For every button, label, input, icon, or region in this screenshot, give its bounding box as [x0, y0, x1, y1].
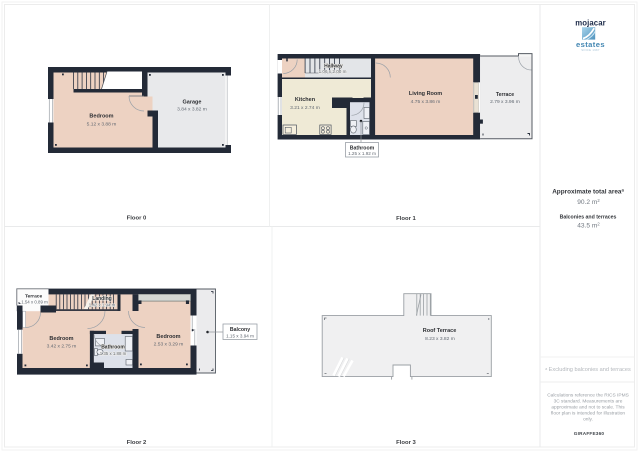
svg-text:1.54 x 0.89 m: 1.54 x 0.89 m [21, 300, 48, 305]
svg-text:Bathroom: Bathroom [101, 345, 125, 351]
svg-text:Bedroom: Bedroom [49, 336, 73, 342]
svg-text:Living Room: Living Room [409, 91, 442, 97]
svg-text:approximate and not to scale.: approximate and not to scale. This [551, 405, 625, 411]
svg-text:1.06 x 2.00 m: 1.06 x 2.00 m [319, 69, 347, 74]
svg-text:4.75 x 3.86 m: 4.75 x 3.86 m [411, 99, 441, 105]
svg-text:43.5 m2: 43.5 m2 [577, 222, 600, 230]
svg-text:Balconies and terraces: Balconies and terraces [560, 215, 617, 221]
svg-text:mojacar: mojacar [575, 18, 606, 27]
svg-text:Calculations reference the RIC: Calculations reference the RICS IPMS [547, 393, 629, 399]
svg-text:Landing: Landing [92, 296, 111, 302]
svg-text:8.23 x 3.82 m: 8.23 x 3.82 m [425, 336, 455, 342]
svg-text:Bedroom: Bedroom [156, 334, 180, 340]
svg-text:3.42 x 2.75 m: 3.42 x 2.75 m [47, 344, 77, 350]
svg-text:Kitchen: Kitchen [295, 97, 316, 103]
svg-text:Approximate total areaa: Approximate total areaa [552, 187, 624, 195]
svg-text:1.35 x 1.88 m: 1.35 x 1.88 m [100, 351, 127, 356]
svg-text:3.21 x 2.74 m: 3.21 x 2.74 m [290, 105, 320, 111]
svg-text:Floor 1: Floor 1 [396, 216, 416, 222]
svg-text:1.25 x 1.92 m: 1.25 x 1.92 m [348, 151, 376, 156]
svg-text:5.12 x 3.88 m: 5.12 x 3.88 m [87, 121, 117, 127]
svg-text:2.79 x 3.96 m: 2.79 x 3.96 m [490, 99, 520, 105]
svg-text:SINCE 1987: SINCE 1987 [581, 48, 600, 52]
svg-text:Floor 0: Floor 0 [127, 216, 147, 222]
svg-text:1.42 x 1.94 m: 1.42 x 1.94 m [89, 302, 116, 307]
svg-text:Bedroom: Bedroom [89, 114, 113, 120]
svg-text:Floor 3: Floor 3 [396, 440, 416, 446]
svg-text:floor plan is intended for ill: floor plan is intended for illustration [551, 411, 625, 417]
svg-text:Balcony: Balcony [230, 327, 250, 333]
svg-text:Terrace: Terrace [496, 92, 514, 98]
svg-text:3.84 x 3.82 m: 3.84 x 3.82 m [177, 107, 207, 113]
svg-text:Floor 2: Floor 2 [127, 440, 147, 446]
svg-text:a Excluding balconies and terr: a Excluding balconies and terraces [545, 367, 631, 373]
svg-text:2.53 x 3.29 m: 2.53 x 3.29 m [154, 342, 184, 348]
svg-text:Garage: Garage [183, 100, 202, 106]
svg-text:GIRAFFE360: GIRAFFE360 [574, 431, 605, 436]
svg-text:1.15 x 3.94 m: 1.15 x 3.94 m [226, 333, 254, 338]
svg-text:Roof Terrace: Roof Terrace [423, 328, 457, 334]
svg-text:3C standard. Measurements are: 3C standard. Measurements are [554, 399, 623, 405]
svg-text:only.: only. [583, 417, 593, 423]
svg-text:90.2 m2: 90.2 m2 [577, 198, 600, 206]
